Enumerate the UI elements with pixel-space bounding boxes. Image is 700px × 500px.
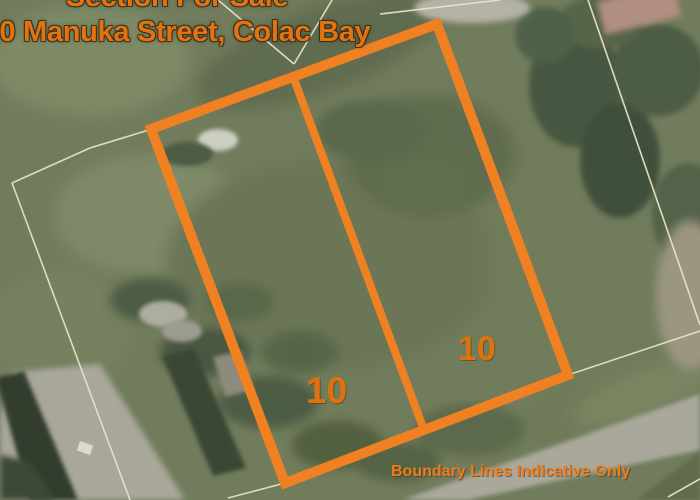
aerial-map: Section For Sale 10 Manuka Street, Colac… — [0, 0, 700, 500]
map-graphics — [0, 0, 700, 500]
